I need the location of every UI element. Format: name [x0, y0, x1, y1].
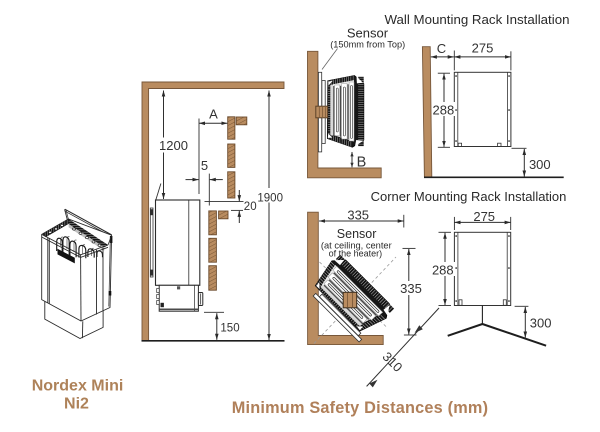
svg-text:1900: 1900 [257, 192, 283, 204]
svg-text:Nordex Mini: Nordex Mini [32, 378, 124, 395]
svg-text:1200: 1200 [159, 138, 188, 153]
svg-text:Corner Mounting Rack Installat: Corner Mounting Rack Installation [371, 189, 567, 204]
svg-text:335: 335 [400, 281, 422, 296]
svg-text:275: 275 [472, 41, 494, 56]
svg-text:B: B [357, 155, 367, 171]
svg-text:Wall Mounting Rack Installatio: Wall Mounting Rack Installation [384, 12, 569, 27]
svg-text:5: 5 [201, 158, 208, 173]
svg-text:300: 300 [530, 315, 552, 330]
svg-text:Minimum Safety Distances (mm): Minimum Safety Distances (mm) [232, 399, 488, 417]
svg-text:288: 288 [433, 102, 455, 117]
svg-text:C: C [437, 41, 446, 56]
svg-text:20: 20 [244, 201, 257, 213]
svg-text:A: A [209, 107, 218, 122]
svg-text:Sensor: Sensor [347, 26, 389, 41]
svg-text:Sensor: Sensor [337, 227, 377, 241]
svg-text:(150mm from Top): (150mm from Top) [330, 39, 405, 49]
svg-text:288: 288 [432, 262, 454, 277]
svg-text:300: 300 [529, 157, 551, 172]
svg-text:of the heater): of the heater) [329, 249, 383, 259]
svg-text:Ni2: Ni2 [64, 396, 89, 413]
svg-text:150: 150 [220, 322, 239, 334]
svg-text:335: 335 [347, 208, 369, 223]
svg-text:275: 275 [473, 209, 495, 224]
